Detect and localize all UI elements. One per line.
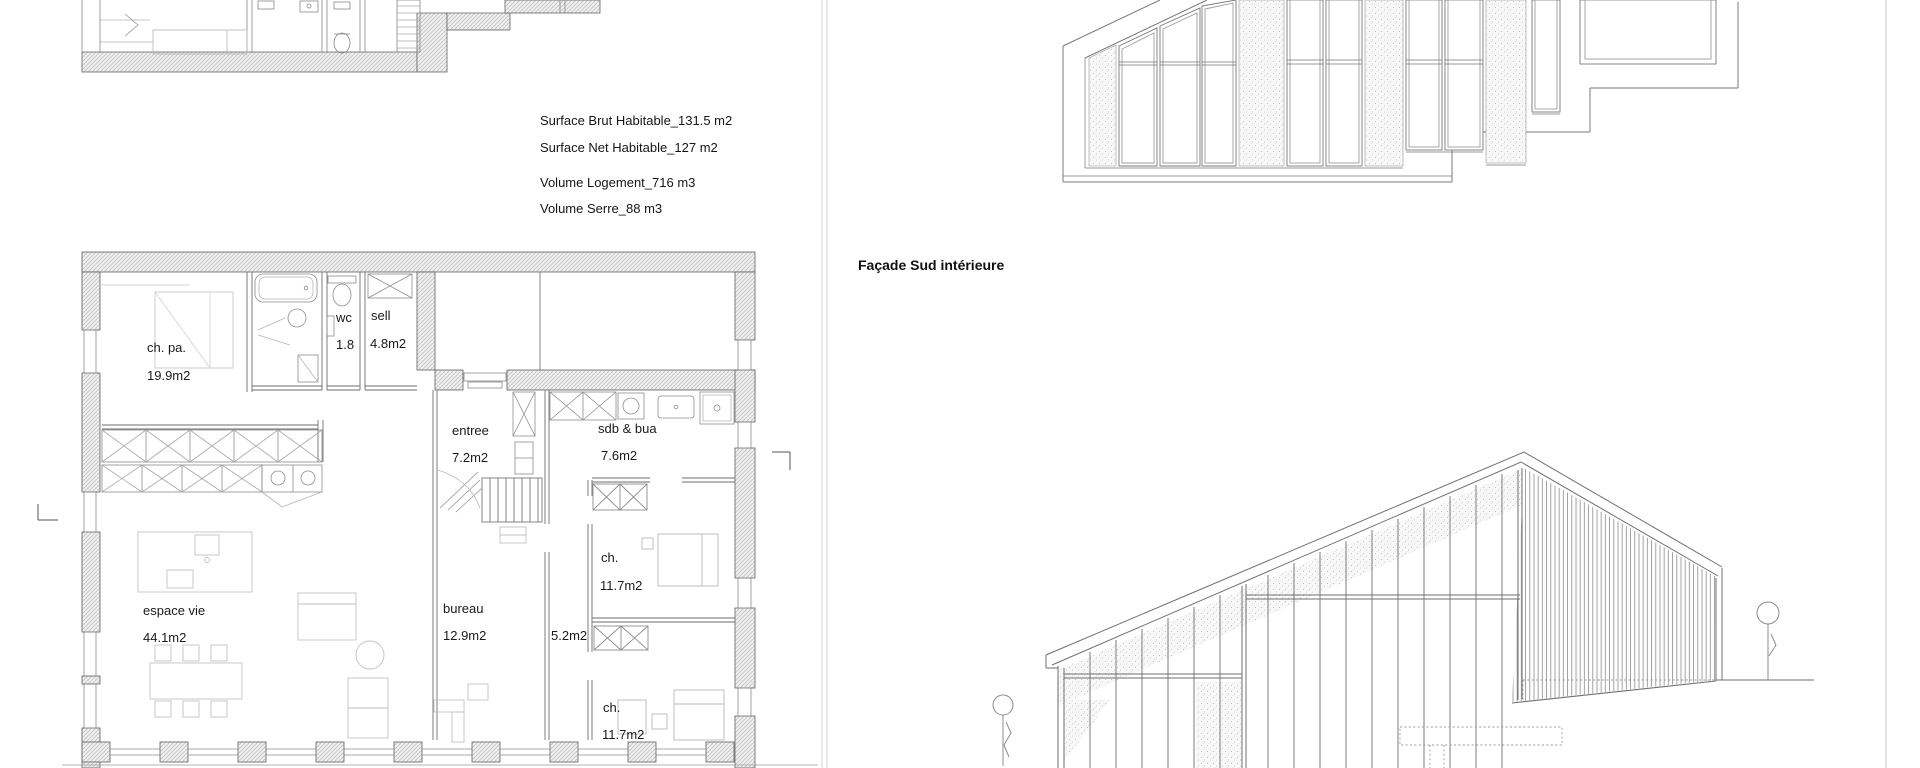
stat-volume-serre: Volume Serre_88 m3: [540, 202, 662, 216]
main-floor-plan: [38, 252, 818, 768]
bedroom1-furniture: [593, 484, 718, 586]
room-ch-pa-area: 19.9m2: [147, 369, 190, 383]
room-ch2-name: ch.: [603, 701, 620, 715]
room-espace-vie-name: espace vie: [143, 604, 205, 618]
room-ch1-area: 11.7m2: [600, 579, 642, 593]
upper-floor-plan: [82, 0, 600, 72]
bathroom-fixtures: [255, 274, 412, 382]
room-sell-name: sell: [371, 309, 391, 323]
stairs: [438, 470, 542, 522]
stat-surface-brut: Surface Brut Habitable_131.5 m2: [540, 114, 732, 128]
stat-volume-logement: Volume Logement_716 m3: [540, 176, 695, 190]
room-ch2-area: 11.7m2: [602, 728, 644, 742]
room-sell-area: 4.8m2: [370, 337, 406, 351]
room-ch1-name: ch.: [601, 551, 618, 565]
entree-closet: [513, 392, 535, 474]
room-entree-name: entree: [452, 424, 489, 438]
facade-elevation-section: [993, 452, 1814, 768]
room-entree-area: 7.2m2: [452, 451, 488, 465]
stick-figure-right: [1757, 602, 1779, 680]
stick-figure-left: [993, 695, 1013, 766]
drawing-linework: [0, 0, 1920, 768]
room-ch-pa-name: ch. pa.: [147, 341, 186, 355]
elevation-title: Façade Sud intérieure: [858, 257, 1004, 273]
facade-elevation-top: [1063, 0, 1738, 182]
room-sdb-area: 7.6m2: [601, 449, 637, 463]
room-sdb-name: sdb & bua: [598, 422, 657, 436]
room-couloir-area: 5.2m2: [551, 629, 587, 643]
drawing-sheet: Surface Brut Habitable_131.5 m2 Surface …: [0, 0, 1920, 768]
room-espace-vie-area: 44.1m2: [143, 631, 186, 645]
stat-surface-net: Surface Net Habitable_127 m2: [540, 141, 718, 155]
sdb-fixtures: [550, 392, 734, 424]
kitchen-counters: [102, 430, 322, 507]
room-bureau-area: 12.9m2: [443, 629, 486, 643]
bedroom2-furniture: [594, 626, 724, 740]
room-bureau-name: bureau: [443, 602, 483, 616]
room-wc-area: 1.8: [336, 338, 354, 352]
master-bedroom-furniture: [100, 285, 233, 368]
plan-windows: [84, 330, 751, 755]
room-wc-name: wc: [336, 311, 352, 325]
plan-walls: [82, 252, 755, 768]
